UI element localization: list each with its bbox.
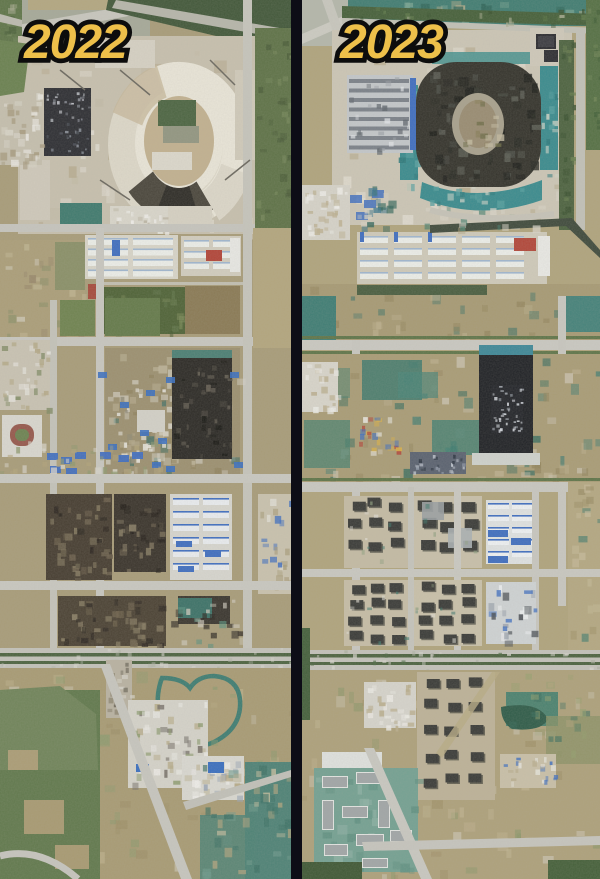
svg-text:2022: 2022: [23, 16, 128, 69]
svg-text:2023: 2023: [339, 16, 444, 69]
